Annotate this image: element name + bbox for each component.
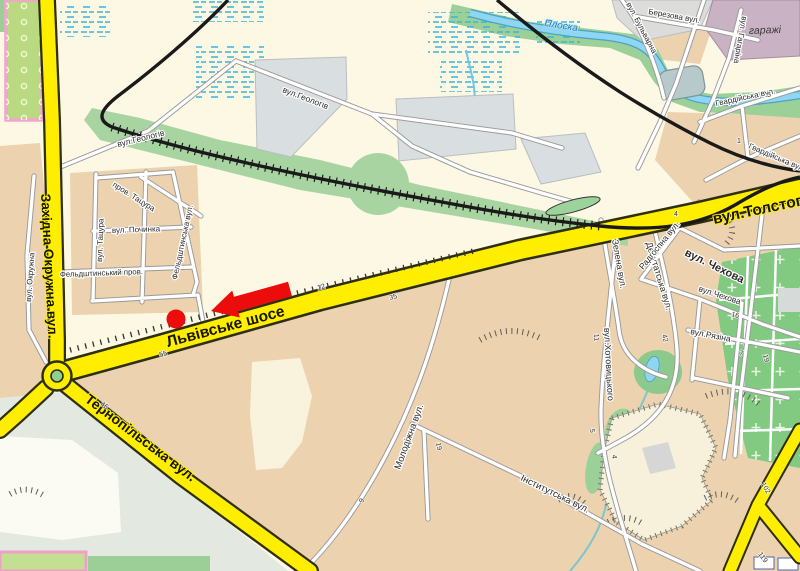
- place-label-garages: гаражі: [749, 24, 782, 37]
- map-viewport[interactable]: Західна Окружна вул. Львівське шосе вул.…: [0, 0, 800, 571]
- street-label-vul-tatsura: вул. Тацура: [95, 218, 106, 262]
- house-number: 5: [588, 429, 595, 434]
- roundabout-island: [51, 370, 63, 382]
- house-number: 4: [610, 455, 617, 460]
- house-number: 1: [737, 138, 741, 145]
- street-label-pochynka: вул. Починка: [112, 224, 161, 235]
- park-trees: [6, 0, 42, 120]
- house-number: 5: [767, 92, 771, 99]
- marsh-symbol: [196, 44, 264, 100]
- marker-dot[interactable]: [167, 310, 186, 329]
- green-patch: [88, 556, 210, 571]
- green-patch: [347, 153, 409, 215]
- park-area-south: [0, 552, 86, 571]
- grey-patch: [778, 288, 800, 312]
- house-number: 11: [592, 334, 600, 342]
- marsh-symbol: [60, 5, 112, 37]
- map-canvas[interactable]: Західна Окружна вул. Львівське шосе вул.…: [0, 0, 800, 571]
- house-number: 4: [674, 211, 678, 218]
